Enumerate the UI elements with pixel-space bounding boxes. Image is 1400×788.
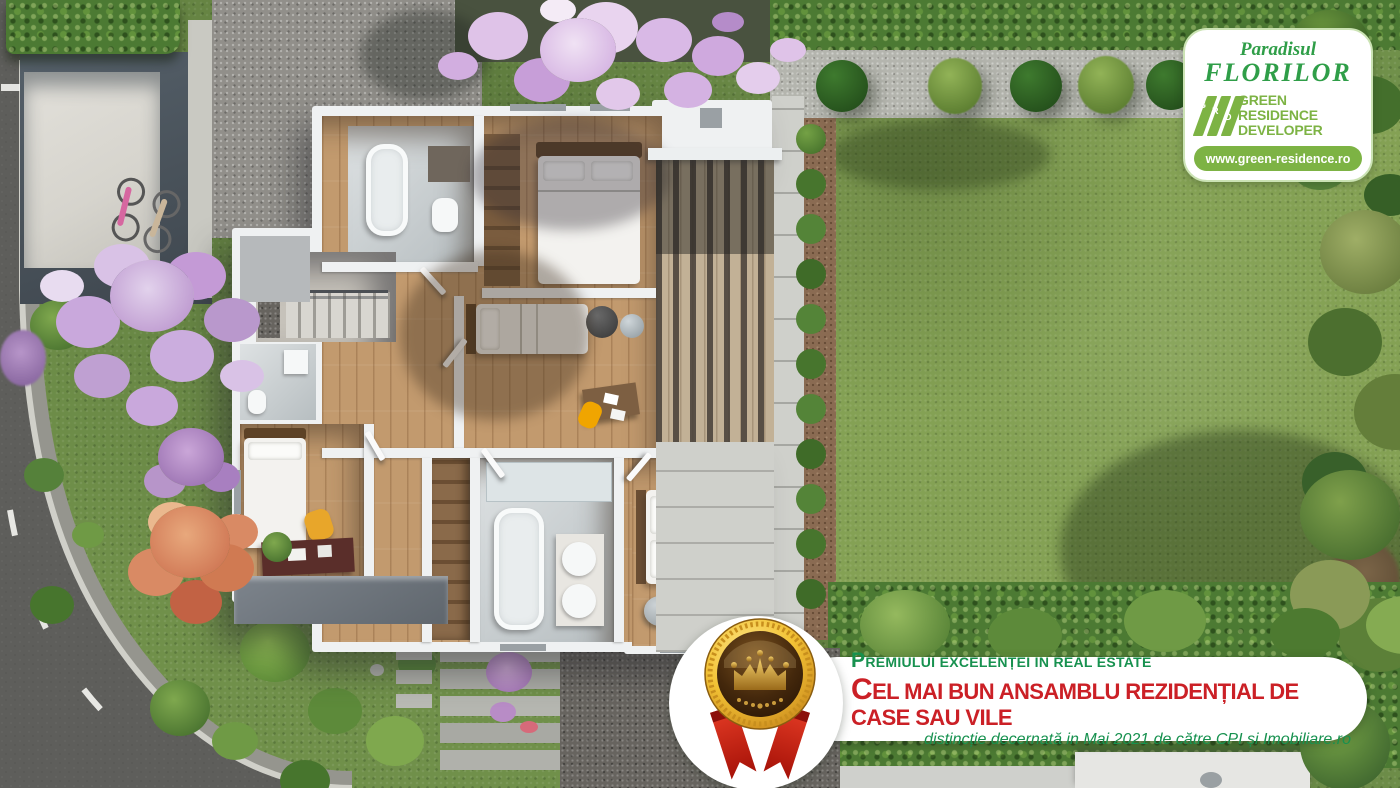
- neighbor-roof: [1075, 752, 1310, 788]
- hedge-row: [6, 0, 180, 54]
- conifer-shrub: [1078, 56, 1134, 114]
- skylight-dome: [1200, 772, 1222, 788]
- flower-cluster-yellow: [478, 630, 496, 646]
- grd-letter-r: R: [1212, 106, 1219, 116]
- topiary-ball: [1010, 60, 1062, 112]
- round-stone: [370, 664, 384, 676]
- developer-line2: DEVELOPER: [1238, 123, 1362, 138]
- magnolia-tree-top: [540, 18, 616, 82]
- paver-path: [772, 96, 804, 656]
- award-details: distincție decernată in Mai 2021 de cătr…: [851, 731, 1351, 749]
- shrub-cluster-right: [1300, 470, 1400, 560]
- website-url: www.green-residence.ro: [1206, 152, 1351, 166]
- gold-medal-icon: [688, 608, 832, 786]
- conifer-shrub: [928, 58, 982, 114]
- boxwood-ball-row: [796, 124, 826, 154]
- grd-letter-g: G: [1199, 100, 1206, 110]
- walkway-strip: [188, 20, 212, 298]
- bush: [150, 680, 210, 736]
- award-banner: Premiului excelenței in real estate Cel …: [795, 657, 1367, 741]
- road-marking: [1, 84, 20, 91]
- magnolia-tree-left: [110, 260, 194, 332]
- flower-cluster-purple: [486, 652, 532, 692]
- developer-logo-badge: Paradisul FLORILOR G R D GREEN RESIDENCE…: [1183, 28, 1373, 182]
- lilac-bush: [158, 428, 224, 486]
- developer-line1: GREEN RESIDENCE: [1238, 93, 1362, 123]
- bushes-bottom-left: [240, 620, 310, 682]
- lilac-bush-left-edge: [0, 330, 46, 386]
- parking-pad: [24, 72, 160, 268]
- step-pads: [396, 646, 432, 660]
- topiary-ball: [816, 60, 868, 112]
- website-bar: www.green-residence.ro: [1194, 146, 1362, 171]
- brand-script-name: Paradisul: [1240, 40, 1316, 59]
- developer-row: G R D GREEN RESIDENCE DEVELOPER: [1194, 93, 1362, 138]
- developer-name: GREEN RESIDENCE DEVELOPER: [1238, 93, 1362, 138]
- bush: [420, 580, 474, 628]
- brand-script-name-2: FLORILOR: [1204, 60, 1351, 86]
- magnolia-shadow: [470, 120, 670, 230]
- mulch-strip: [804, 118, 836, 640]
- grd-logo-icon: G R D: [1194, 96, 1238, 136]
- aerial-render-scene: Paradisul FLORILOR G R D GREEN RESIDENCE…: [0, 0, 1400, 788]
- olive-tree-right: [1320, 210, 1400, 294]
- orange-red-tree: [150, 506, 230, 578]
- pergola-beam: [648, 148, 782, 160]
- tree-shadow: [360, 10, 490, 100]
- pergola-shade: [656, 158, 774, 254]
- award-category: Premiului excelenței in real estate: [851, 649, 1351, 673]
- grd-letter-d: D: [1225, 112, 1232, 122]
- shrub-shadow-on-lawn: [830, 120, 1050, 190]
- award-title: Cel mai bun ansamblu rezidențial de case…: [851, 674, 1351, 729]
